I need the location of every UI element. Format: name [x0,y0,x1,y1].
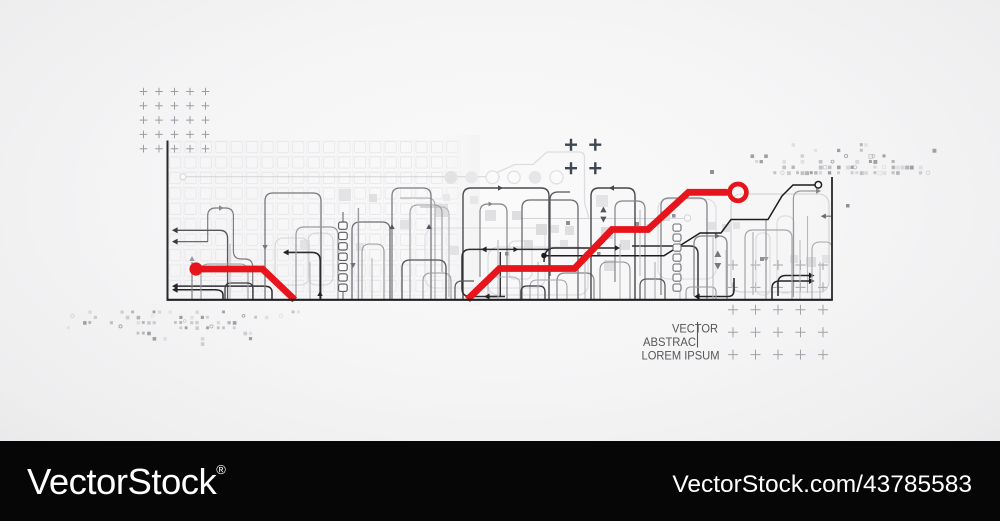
svg-text:LOREM IPSUM: LOREM IPSUM [642,350,720,363]
svg-text:VECTOR: VECTOR [672,323,718,336]
svg-text:ABSTRAC: ABSTRAC [643,336,696,349]
svg-text:VectorStock.com/43785583: VectorStock.com/43785583 [672,471,972,498]
svg-text:VectorStock®: VectorStock® [27,461,226,502]
